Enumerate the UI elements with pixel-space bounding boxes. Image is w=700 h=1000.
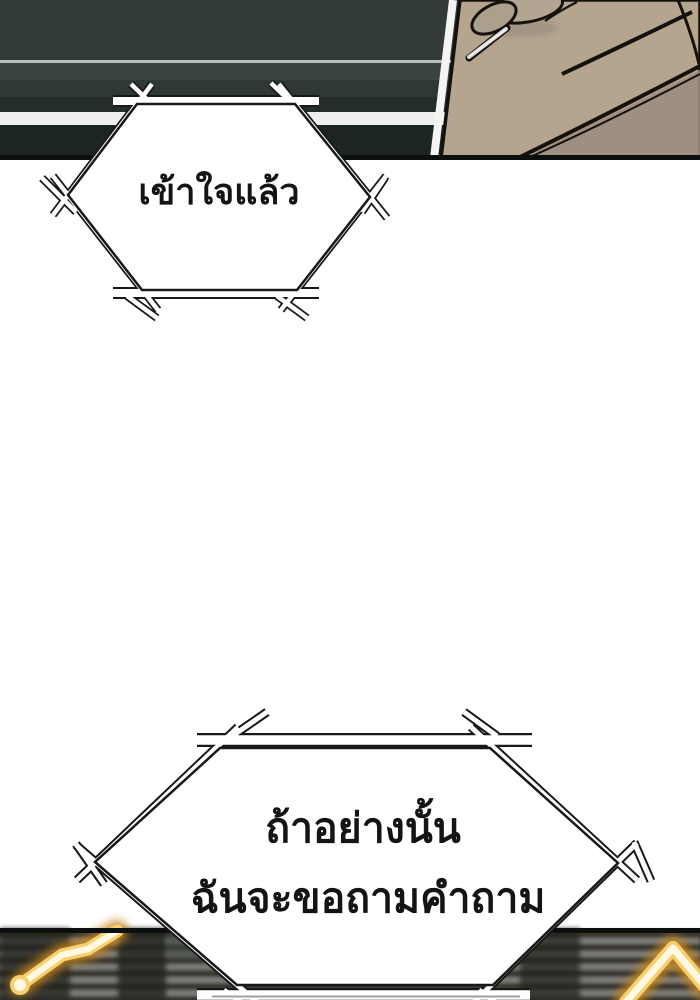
webtoon-page: เข้าใจแล้ว ถ้าอย่างนั้น ฉันจะขอถามคำถาม [0,0,700,1000]
bubble-bottom-text-line1: ถ้าอย่างนั้น [265,798,461,851]
bottom-shade-mid [118,928,166,1000]
bubble-bottom-text-line2: ฉันจะขอถามคำถาม [191,875,546,921]
bubble-top-text: เข้าใจแล้ว [138,170,299,212]
top-scene-panel [0,0,700,160]
comic-panel-canvas: เข้าใจแล้ว ถ้าอย่างนั้น ฉันจะขอถามคำถาม [0,0,700,1000]
hand-illustration [434,0,700,158]
